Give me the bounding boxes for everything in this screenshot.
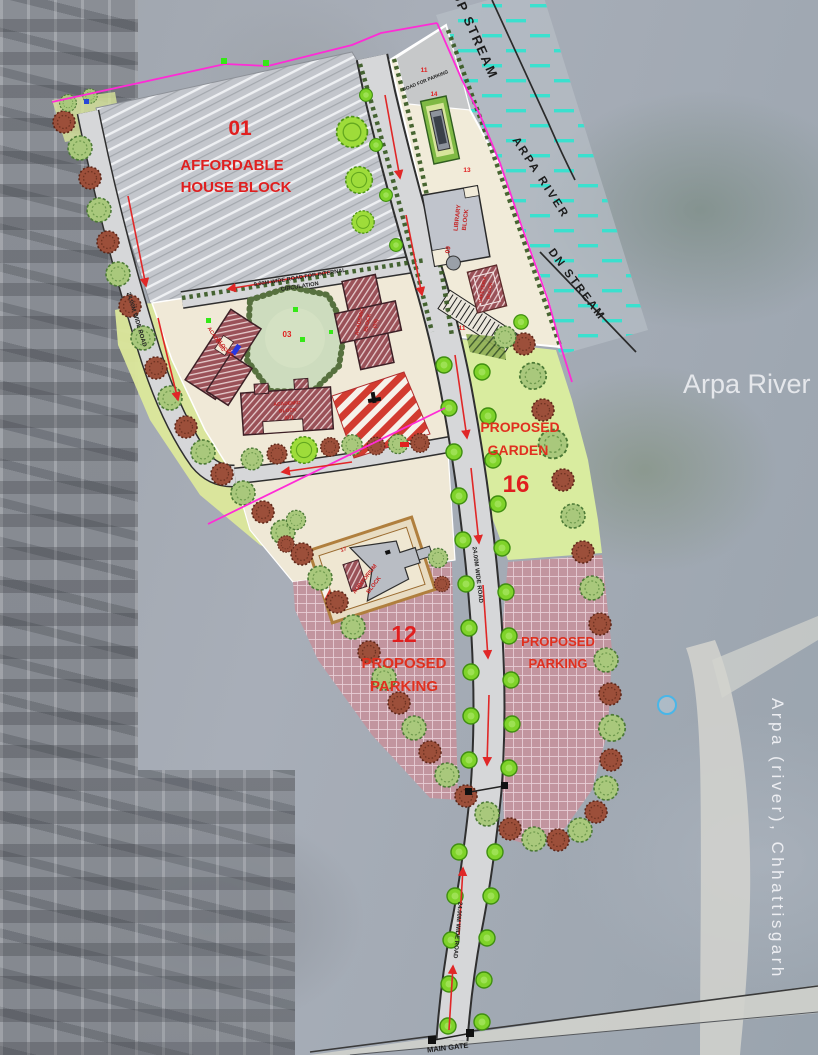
- affordable-line2: HOUSE BLOCK: [181, 179, 292, 196]
- central-court: [247, 287, 345, 392]
- parking-main-line2: PARKING: [370, 678, 438, 695]
- academic-south-l3: (07): [284, 415, 294, 422]
- parking-east-line2: PARKING: [529, 656, 588, 671]
- parking-main-number: 12: [391, 621, 417, 647]
- arpa-river-map-label: Arpa River: [683, 369, 811, 399]
- map-pin-circle: [658, 696, 676, 714]
- site-plan-screenshot: 01 AFFORDABLE HOUSE BLOCK PROPOSED GARDE…: [0, 0, 818, 1055]
- garden-line2: GARDEN: [488, 442, 549, 458]
- play-court-number: 14: [431, 92, 438, 98]
- wedge-number: 11: [421, 67, 428, 74]
- affordable-line1: AFFORDABLE: [180, 157, 283, 174]
- strip-number: 13: [463, 167, 471, 174]
- parking-main-line1: PROPOSED: [361, 655, 446, 672]
- court-number: 03: [283, 330, 292, 339]
- library-number: 09: [445, 245, 453, 253]
- main-gate-post-left: [428, 1036, 436, 1044]
- affordable-number: 01: [228, 117, 252, 140]
- main-gate-post-right: [466, 1029, 474, 1037]
- master-plan-overlay: 01 AFFORDABLE HOUSE BLOCK PROPOSED GARDE…: [0, 0, 818, 1055]
- arpa-river-vertical-label: Arpa (river), Chhattisgarh: [768, 698, 787, 980]
- stalls-number: 11: [459, 325, 466, 332]
- parking-east-line1: PROPOSED: [521, 634, 595, 649]
- academic-south-l2: BLOCK: [279, 407, 298, 414]
- garden-number: 16: [503, 471, 530, 498]
- garden-line1: PROPOSED: [480, 419, 559, 435]
